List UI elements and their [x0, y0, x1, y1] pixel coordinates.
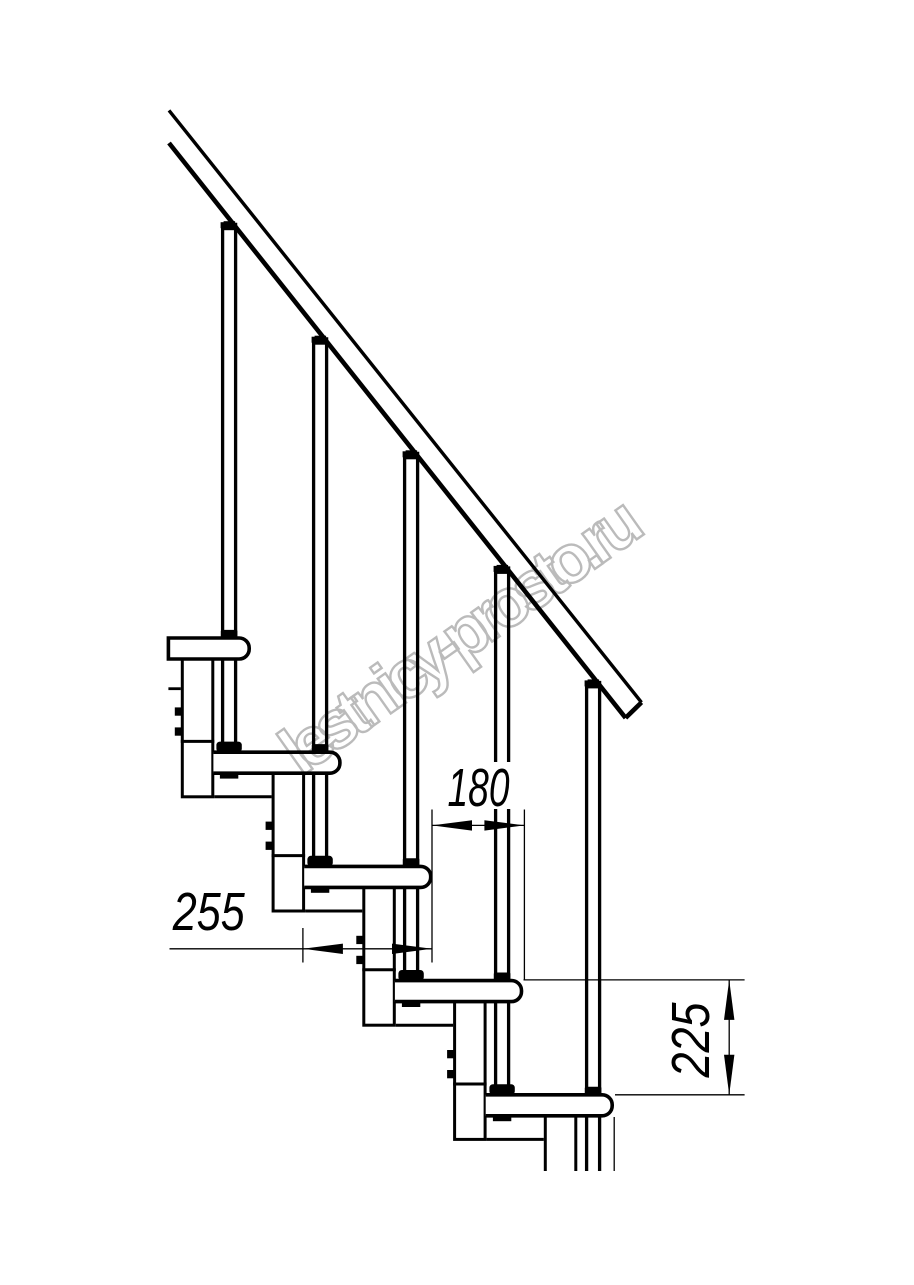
- svg-text:225: 225: [661, 1002, 721, 1079]
- svg-text:255: 255: [172, 882, 246, 942]
- svg-text:180: 180: [448, 758, 510, 818]
